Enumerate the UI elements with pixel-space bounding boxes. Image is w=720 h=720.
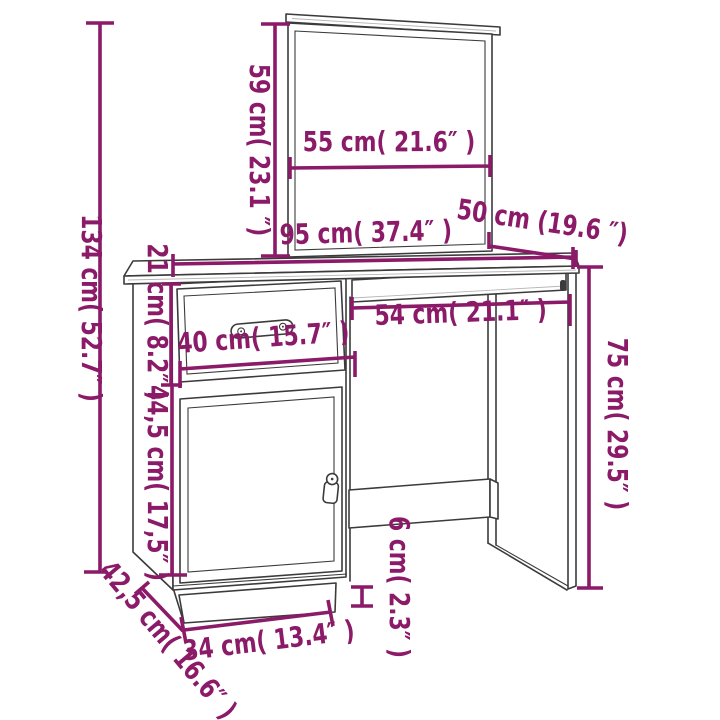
right-panel-bottom-edge2 — [496, 545, 568, 586]
dim-mirror-height-label: 59 cm( 23.1 ″) — [243, 64, 275, 236]
dimensions: 134 cm( 52.7″ ) 59 cm( 23.1 ″) 55 cm( 21… — [75, 23, 633, 720]
dim-plinth-height-label: 6 cm( 2.3″ ) — [383, 516, 415, 658]
dim-knee-height: 75 cm( 29.5″ ) — [577, 267, 634, 588]
dim-plinth-height: 6 cm( 2.3″ ) — [351, 516, 416, 658]
dim-door-height-label: 44,5 cm( 17,5″ ) — [141, 385, 173, 581]
dim-desk-width-label: 95 cm( 37.4″ ) — [279, 214, 452, 251]
diagram-canvas: 134 cm( 52.7″ ) 59 cm( 23.1 ″) 55 cm( 21… — [0, 0, 720, 720]
dim-knee-height-label: 75 cm( 29.5″ ) — [601, 338, 633, 510]
stretcher-bar — [349, 479, 490, 528]
dim-drawer-height-label: 21 cm( 8.2″ ) — [141, 243, 173, 400]
dim-mirror-width-label: 55 cm( 21.6″ ) — [303, 125, 475, 157]
dim-knee-width-label: 54 cm( 21.1″ ) — [374, 293, 547, 331]
right-panel-bottom-edge — [488, 543, 567, 590]
dim-total-height-label: 134 cm( 52.7″ ) — [75, 214, 107, 402]
stretcher-bar-end — [490, 479, 498, 519]
dimension-diagram: 134 cm( 52.7″ ) 59 cm( 23.1 ″) 55 cm( 21… — [0, 0, 720, 720]
door — [180, 387, 342, 583]
dim-knee-width: 54 cm( 21.1″ ) — [352, 293, 570, 331]
dim-total-height: 134 cm( 52.7″ ) — [75, 23, 114, 572]
plinth-base — [179, 583, 336, 623]
tray-keyhole — [560, 280, 566, 291]
